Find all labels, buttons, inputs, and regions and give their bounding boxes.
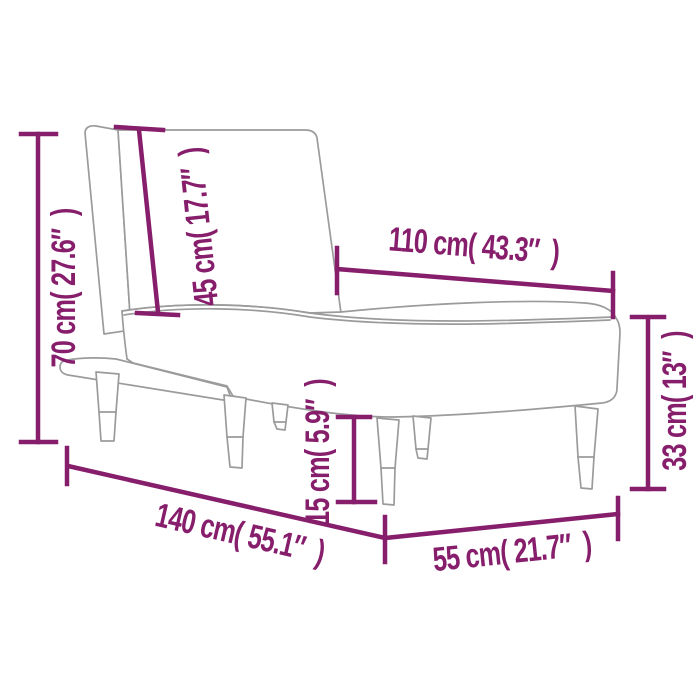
leg-front-right [575,406,598,489]
leg-mid-left [224,395,246,468]
dimension-diagram: 70 cm( 27.6″ ) 45 cm( 17.7″ ) 110 cm( 43… [0,0,700,700]
seat-height-label: 33 cm( 13″ ) [658,331,692,470]
leg-front-middle [377,418,399,505]
leg-front-left [96,372,119,441]
leg-rear-middle [413,416,431,459]
leg-height-label: 15 cm( 5.9″ ) [301,379,335,525]
leg-rear-left [272,403,288,430]
dim-line-leg-height [338,417,375,502]
chaise-longue-drawing [0,0,700,700]
overall-height-label: 70 cm( 27.6″ ) [47,209,81,368]
